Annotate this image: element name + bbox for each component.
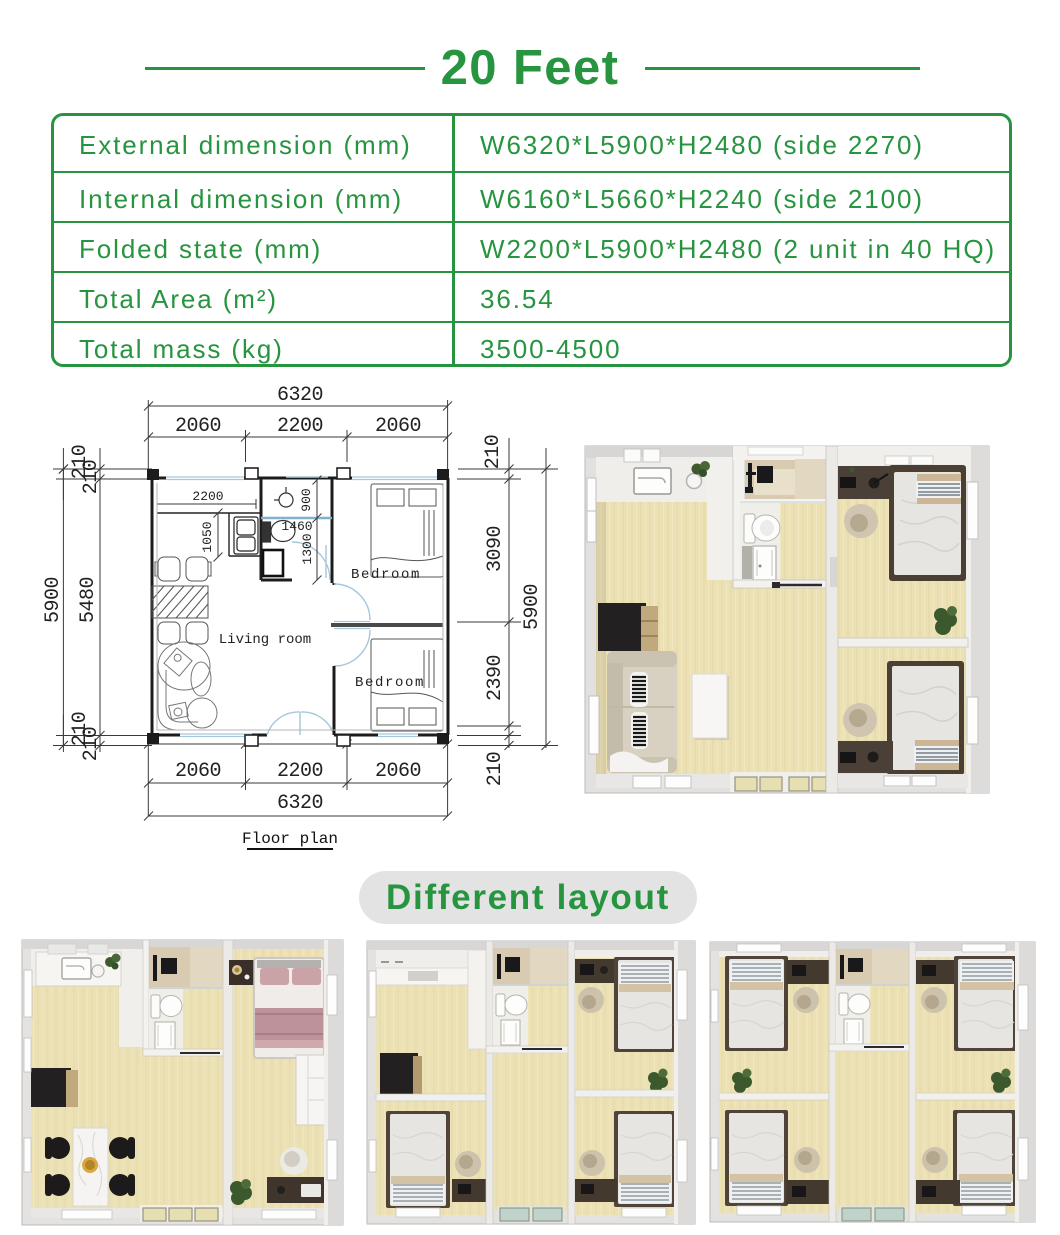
svg-text:3090: 3090 [484, 526, 507, 572]
svg-text:Floor plan: Floor plan [242, 830, 338, 848]
svg-text:Bedroom: Bedroom [355, 675, 425, 691]
svg-text:6320: 6320 [277, 792, 323, 815]
svg-text:210: 210 [482, 435, 505, 470]
svg-text:5900: 5900 [521, 584, 544, 630]
svg-text:2200: 2200 [277, 415, 323, 438]
svg-text:900: 900 [299, 488, 314, 511]
svg-text:1050: 1050 [200, 521, 215, 552]
svg-text:2060: 2060 [175, 415, 221, 438]
svg-text:210: 210 [484, 752, 507, 787]
svg-text:5900: 5900 [42, 577, 65, 623]
svg-text:2060: 2060 [175, 760, 221, 783]
svg-text:2060: 2060 [375, 760, 421, 783]
svg-text:2200: 2200 [192, 489, 223, 504]
svg-text:210: 210 [80, 727, 103, 762]
svg-text:2060: 2060 [375, 415, 421, 438]
svg-text:Bedroom: Bedroom [351, 567, 421, 583]
svg-text:5480: 5480 [77, 577, 100, 623]
svg-text:6320: 6320 [277, 385, 323, 407]
svg-text:Living room: Living room [219, 632, 311, 648]
svg-text:1460: 1460 [281, 519, 312, 534]
svg-text:2390: 2390 [484, 655, 507, 701]
svg-text:1300: 1300 [300, 533, 315, 564]
svg-text:2200: 2200 [277, 760, 323, 783]
